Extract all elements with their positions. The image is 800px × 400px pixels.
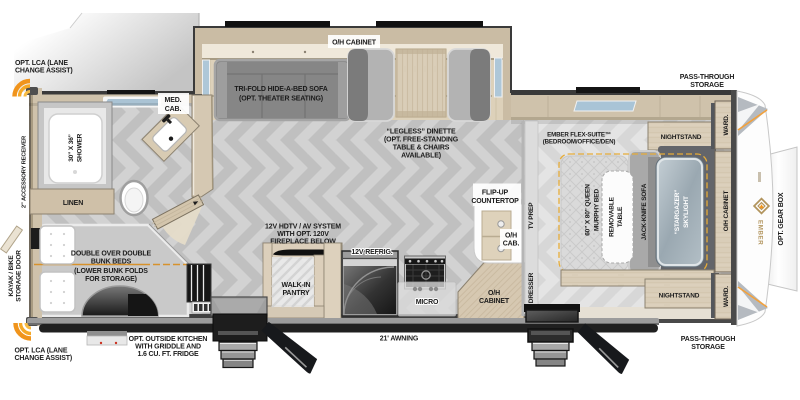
svg-text:NIGHTSTAND: NIGHTSTAND — [659, 293, 700, 300]
svg-text:MICRO: MICRO — [416, 299, 439, 306]
svg-text:(OPT. THEATER SEATING): (OPT. THEATER SEATING) — [239, 96, 323, 103]
svg-text:(BEDROOM/OFFICE/DEN): (BEDROOM/OFFICE/DEN) — [543, 139, 616, 146]
svg-text:CAB.: CAB. — [503, 241, 520, 248]
svg-text:PANTRY: PANTRY — [282, 290, 310, 297]
svg-text:O/H CABINET: O/H CABINET — [723, 191, 730, 232]
svg-text:COUNTERTOP: COUNTERTOP — [471, 198, 519, 205]
svg-text:“STARGAZER”: “STARGAZER” — [674, 190, 681, 235]
svg-text:OPT. LCA (LANE: OPT. LCA (LANE — [15, 60, 68, 67]
svg-text:2” ACCESSORY RECEIVER: 2” ACCESSORY RECEIVER — [22, 135, 28, 208]
svg-text:60” X 80” QUEEN: 60” X 80” QUEEN — [585, 184, 592, 236]
svg-text:JACK-KNIFE SOFA: JACK-KNIFE SOFA — [641, 183, 648, 240]
svg-text:KAYAK / BIKE: KAYAK / BIKE — [8, 255, 15, 297]
svg-text:OPT. LCA (LANE: OPT. LCA (LANE — [15, 348, 68, 355]
svg-text:30” X 36”: 30” X 36” — [68, 134, 75, 162]
svg-text:EMBER: EMBER — [757, 220, 764, 245]
svg-text:1.6 CU. FT. FRIDGE: 1.6 CU. FT. FRIDGE — [137, 351, 199, 358]
svg-text:“LEGLESS” DINETTE: “LEGLESS” DINETTE — [386, 129, 455, 136]
svg-text:TRI-FOLD HIDE-A-BED SOFA: TRI-FOLD HIDE-A-BED SOFA — [234, 86, 327, 93]
svg-text:TV PREP: TV PREP — [528, 202, 535, 230]
svg-text:DOUBLE OVER DOUBLE: DOUBLE OVER DOUBLE — [71, 251, 152, 258]
svg-text:TABLE: TABLE — [617, 206, 624, 227]
svg-text:O/H CABINET: O/H CABINET — [332, 40, 377, 47]
svg-text:(LOWER BUNK FOLDS: (LOWER BUNK FOLDS — [74, 268, 148, 275]
svg-text:OPT. OUTSIDE KITCHEN: OPT. OUTSIDE KITCHEN — [129, 336, 208, 343]
svg-text:MED.: MED. — [165, 97, 182, 104]
svg-text:DRESSER: DRESSER — [528, 272, 535, 303]
svg-text:PASS-THROUGH: PASS-THROUGH — [681, 336, 736, 343]
svg-text:CABINET: CABINET — [479, 298, 510, 305]
svg-text:12V REFRIG.: 12V REFRIG. — [351, 249, 392, 256]
svg-text:CHANGE ASSIST): CHANGE ASSIST) — [15, 355, 73, 362]
svg-text:TABLE & CHAIRS: TABLE & CHAIRS — [393, 145, 450, 152]
svg-text:PASS-THROUGH: PASS-THROUGH — [680, 74, 735, 81]
svg-text:OPT. GEAR BOX: OPT. GEAR BOX — [778, 192, 785, 245]
svg-text:FLIP-UP: FLIP-UP — [482, 190, 509, 197]
svg-text:WARD.: WARD. — [723, 114, 730, 135]
svg-text:STORAGE DOOR: STORAGE DOOR — [16, 250, 23, 302]
svg-text:EMBER FLEX-SUITE™: EMBER FLEX-SUITE™ — [547, 132, 611, 139]
svg-text:WITH OPT. 120V: WITH OPT. 120V — [277, 231, 329, 238]
svg-text:SKYLIGHT: SKYLIGHT — [683, 196, 690, 228]
svg-text:SHOWER: SHOWER — [77, 133, 84, 162]
svg-text:WITH GRIDDLE AND: WITH GRIDDLE AND — [135, 344, 201, 351]
svg-text:12V HDTV / AV SYSTEM: 12V HDTV / AV SYSTEM — [265, 224, 341, 231]
svg-text:MURPHY BED: MURPHY BED — [594, 189, 601, 232]
svg-text:STORAGE: STORAGE — [690, 82, 724, 89]
svg-text:CAB.: CAB. — [165, 106, 182, 113]
svg-text:STORAGE: STORAGE — [691, 344, 725, 351]
svg-text:NIGHTSTAND: NIGHTSTAND — [661, 134, 702, 141]
svg-text:WALK-IN: WALK-IN — [282, 282, 311, 289]
svg-text:CHANGE ASSIST): CHANGE ASSIST) — [15, 68, 73, 75]
svg-text:21' AWNING: 21' AWNING — [380, 336, 419, 343]
svg-text:(OPT. FREE-STANDING: (OPT. FREE-STANDING — [384, 137, 459, 144]
svg-text:BUNK BEDS: BUNK BEDS — [91, 259, 132, 266]
svg-text:REMOVABLE: REMOVABLE — [609, 196, 616, 237]
svg-text:O/H: O/H — [505, 233, 517, 240]
svg-text:FOR STORAGE): FOR STORAGE) — [85, 276, 137, 283]
svg-text:AVAILABLE): AVAILABLE) — [401, 153, 441, 160]
svg-text:O/H: O/H — [488, 290, 500, 297]
svg-text:WARD.: WARD. — [723, 286, 730, 307]
svg-text:LINEN: LINEN — [63, 200, 83, 207]
